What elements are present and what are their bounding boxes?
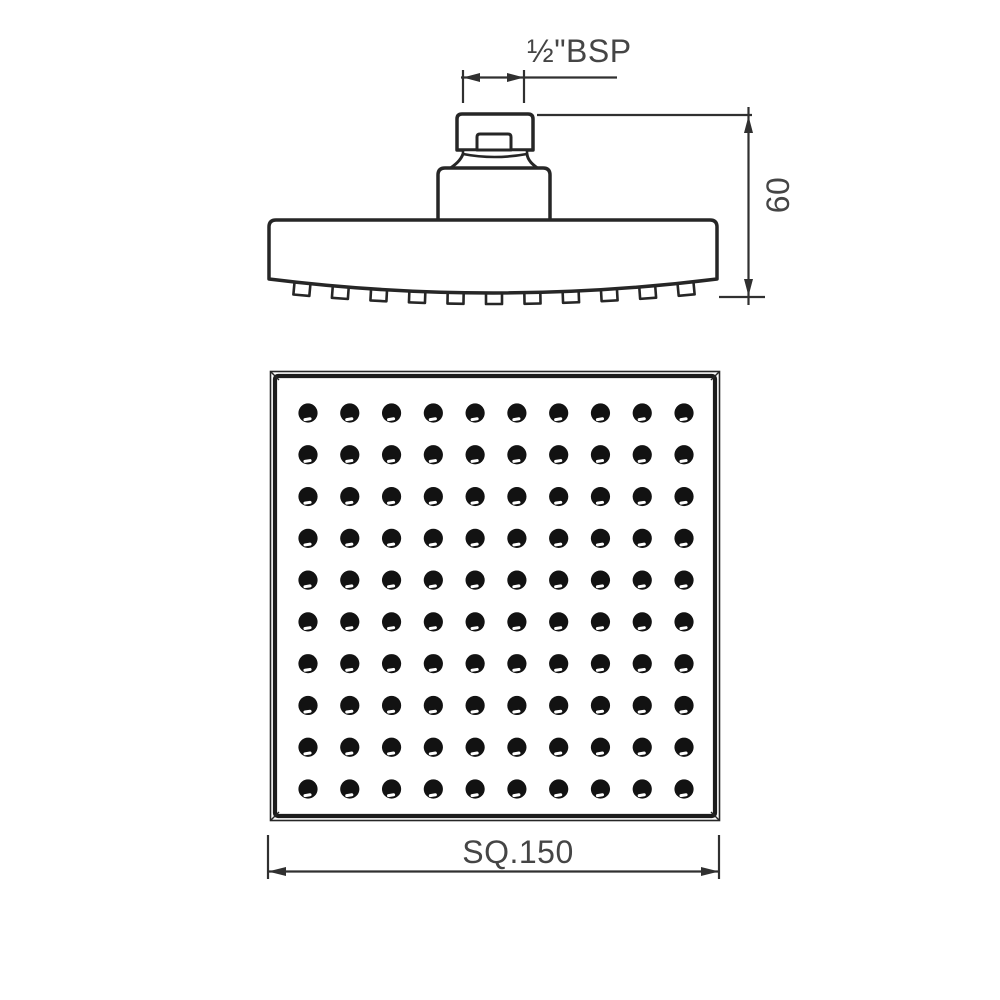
face-size-label: SQ.150 <box>418 834 618 871</box>
thread-size-label: ½"BSP <box>527 33 632 70</box>
thread-dimension <box>461 70 617 103</box>
height-arrow-up-icon <box>744 116 753 133</box>
showerhead-side-view <box>269 114 717 304</box>
height-label: 60 <box>760 155 796 235</box>
face-arrow-left-icon <box>268 867 286 876</box>
face-arrow-right-icon <box>701 867 719 876</box>
technical-drawing-canvas: ½"BSP 60 SQ.150 <box>0 0 1000 1000</box>
thread-arrow-right-icon <box>507 73 524 82</box>
stem-block <box>438 168 550 221</box>
height-arrow-down-icon <box>744 279 753 296</box>
thread-inlet <box>477 134 511 150</box>
thread-arrow-left-icon <box>463 73 480 82</box>
head-body <box>269 220 717 293</box>
showerhead-face-view <box>271 372 720 821</box>
